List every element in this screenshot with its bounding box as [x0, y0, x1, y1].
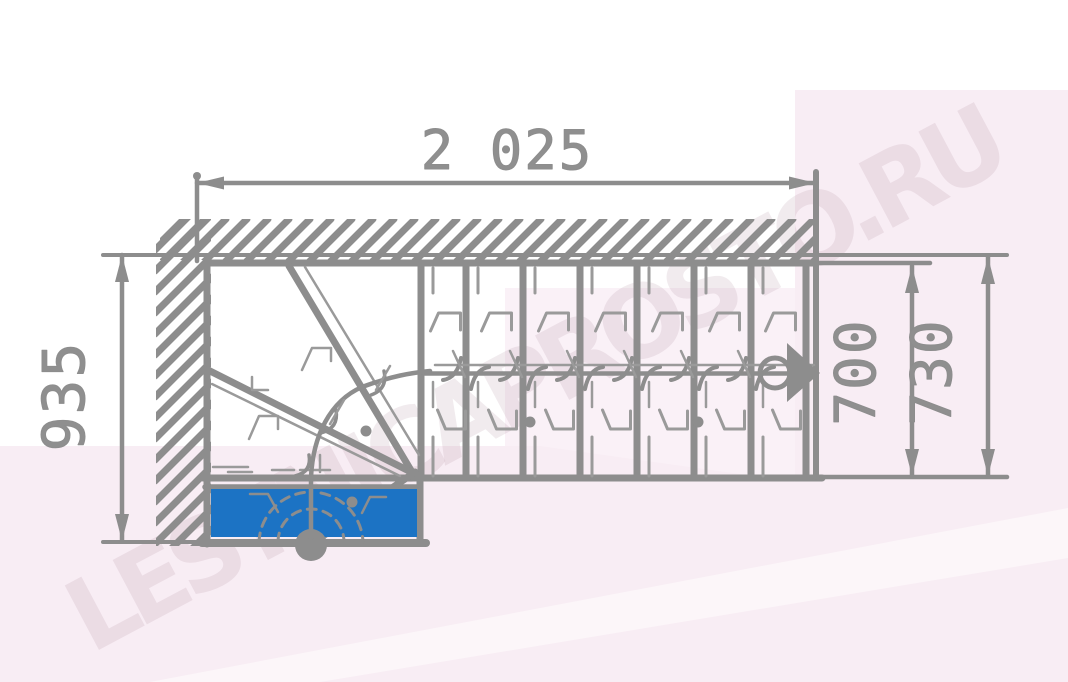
extension-line-cap: [193, 172, 201, 180]
arrowhead-up: [115, 255, 129, 282]
baluster-dot-3: [525, 417, 536, 428]
tread-dash-hook-upper: [431, 313, 461, 331]
baluster-dot-1: [361, 426, 372, 437]
dimension-value-overall-width: 730: [900, 318, 965, 425]
dimension-value-total-run: 2 025: [421, 119, 594, 182]
winder-dash-hook-3: [252, 377, 268, 390]
baluster-dot-4: [693, 417, 704, 428]
stair-plan-page: LESTNICAPROSTO.RU: [0, 0, 1068, 682]
arrowhead-left: [197, 177, 224, 190]
dimension-value-side-depth: 935: [30, 341, 98, 452]
dimension-value-flight-width: 700: [824, 318, 889, 425]
winder-dash-hook-2: [249, 416, 278, 439]
baluster-dot-2: [347, 497, 358, 508]
stair-plan-drawing: LESTNICAPROSTO.RU: [0, 0, 1068, 682]
winder-dash-hook-1: [302, 348, 331, 370]
